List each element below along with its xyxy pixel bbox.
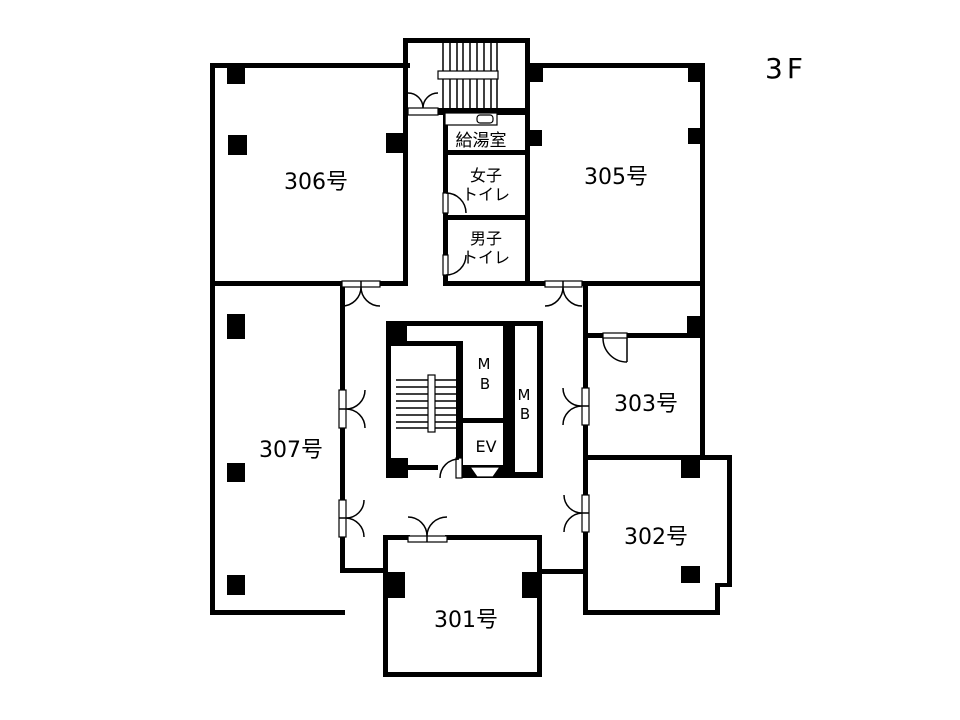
room-302-label: 302号: [624, 525, 688, 550]
womens-toilet-label-line2: トイレ: [462, 185, 510, 204]
room-306-label: 306号: [284, 170, 348, 195]
staircase-core-handrail: [428, 375, 435, 432]
kitchenette-sink-icon: [477, 115, 493, 123]
mens-toilet-label-line2: トイレ: [462, 248, 510, 267]
room-301-label: 301号: [434, 608, 498, 633]
room-303-label: 303号: [614, 392, 678, 417]
room-305-label: 305号: [584, 165, 648, 190]
floor-plan-canvas: 3F 306号 305号 307号 303号 302号 301号 給湯室 女子 …: [0, 0, 960, 720]
meter-box-right-label-line2: B: [520, 405, 530, 423]
staircase-upper-handrail: [438, 71, 498, 79]
meter-box-top-label-line1: M: [478, 355, 491, 373]
meter-box-top-label-line2: B: [480, 375, 490, 393]
door-leaf-mens-toilet: [443, 255, 448, 275]
elevator-label: EV: [475, 437, 496, 456]
door-leaf-303-vestibule: [603, 333, 627, 338]
floor-plan: 3F 306号 305号 307号 303号 302号 301号 給湯室 女子 …: [0, 0, 960, 720]
door-leaf-stairs-upper: [408, 108, 438, 115]
door-leaf-womens-toilet: [443, 193, 448, 213]
floor-label: 3F: [765, 52, 807, 85]
room-307-label: 307号: [259, 438, 323, 463]
womens-toilet-label-line1: 女子: [470, 166, 502, 185]
mens-toilet-label-line1: 男子: [470, 229, 502, 248]
door-leaf-stairwell: [456, 458, 462, 478]
meter-box-right-label-line1: M: [518, 386, 531, 404]
kitchenette-label: 給湯室: [456, 131, 507, 151]
